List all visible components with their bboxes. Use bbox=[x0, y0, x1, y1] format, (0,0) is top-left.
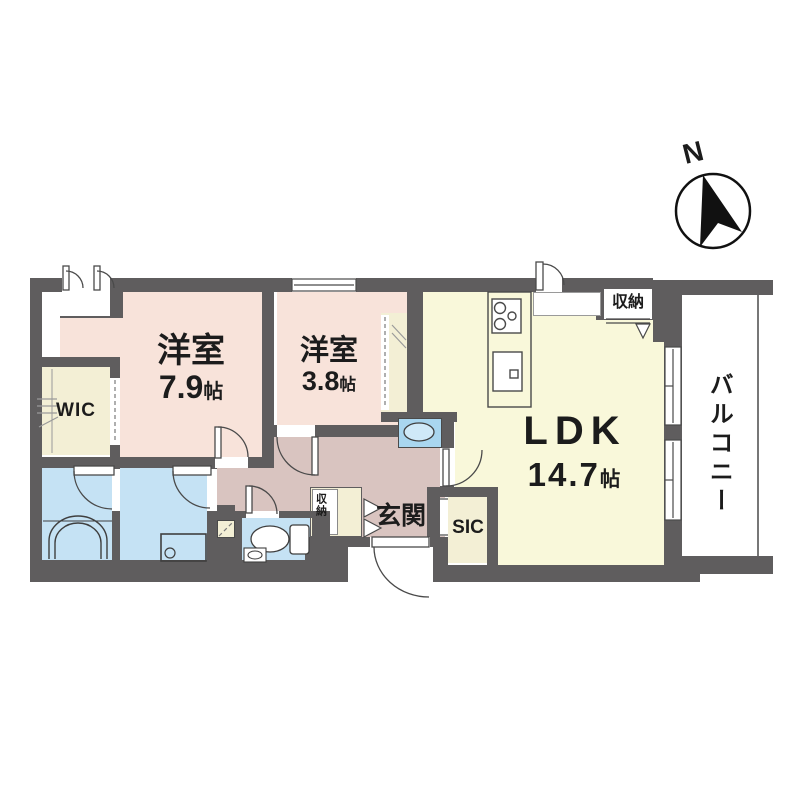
ldk-unit: 帖 bbox=[600, 468, 622, 491]
hall-storage-label: 収納 bbox=[314, 493, 326, 517]
opening-entrance-door bbox=[370, 537, 430, 547]
wall-wic-top bbox=[30, 357, 110, 367]
balcony-label: バルコニー bbox=[706, 372, 731, 517]
wall-kitchen-divider bbox=[407, 288, 423, 412]
bedroom-main-name: 洋室 bbox=[157, 332, 225, 370]
opening-toilet-door bbox=[246, 511, 279, 518]
bedroom-main-size: 7.9 bbox=[159, 369, 203, 405]
wall-porch-edge bbox=[60, 316, 123, 318]
wall-storage-bottom bbox=[305, 537, 348, 560]
opening-ldk-door bbox=[440, 448, 454, 486]
bedroom-second-unit: 帖 bbox=[339, 375, 356, 394]
opening-washroom-door bbox=[207, 469, 217, 511]
opening-bedroom-second-door bbox=[277, 425, 315, 437]
washroom-floor bbox=[120, 467, 207, 560]
entrance-label: 玄関 bbox=[362, 503, 440, 529]
opening-wic-door bbox=[110, 378, 120, 445]
bedroom-second-size: 3.8 bbox=[302, 366, 340, 396]
wall-toilet-left bbox=[235, 518, 242, 563]
north-compass-icon bbox=[676, 174, 750, 248]
bedroom-main-label: 洋室 7.9帖 bbox=[120, 334, 262, 405]
floor-plan: 洋室 7.9帖 洋室 3.8帖 LDK 14.7帖 WIC SIC 玄関 バルコ… bbox=[0, 0, 800, 800]
opening-bedroom-main-door bbox=[215, 457, 248, 468]
sic-label: SIC bbox=[446, 518, 490, 538]
wall-porch-right bbox=[110, 292, 123, 318]
compass-north-label: N bbox=[680, 136, 707, 169]
wall-left bbox=[30, 278, 42, 582]
window-bedroom-second bbox=[292, 278, 356, 292]
ldk-floor-bottom bbox=[498, 497, 664, 567]
opening-kitchen-door bbox=[536, 278, 562, 292]
opening-closet-door bbox=[381, 315, 389, 410]
opening-porch-doors bbox=[62, 278, 110, 292]
bedroom-second-label: 洋室 3.8帖 bbox=[277, 336, 381, 397]
wall-bottom-right bbox=[433, 565, 700, 582]
pipe-space-box bbox=[217, 520, 235, 538]
bedroom-main-unit: 帖 bbox=[203, 381, 223, 403]
ldk-label: LDK 14.7帖 bbox=[475, 410, 675, 494]
bedroom-second-name: 洋室 bbox=[300, 335, 358, 367]
ldk-size: 14.7 bbox=[528, 456, 600, 493]
ldk-name: LDK bbox=[523, 409, 626, 453]
wall-hall-ldk-upper bbox=[440, 412, 454, 450]
toilet-floor bbox=[242, 518, 312, 563]
opening-bathroom-door bbox=[112, 469, 120, 511]
washbasin-counter bbox=[398, 418, 442, 448]
bathroom-floor bbox=[42, 467, 112, 560]
kitchen-counter-strip bbox=[533, 292, 601, 316]
hallway-floor-3 bbox=[310, 467, 362, 487]
wall-bedrooms-divider bbox=[262, 288, 274, 468]
wall-balcony-top bbox=[653, 280, 773, 295]
entrance-door-arc bbox=[374, 547, 429, 597]
wic-label: WIC bbox=[42, 401, 110, 421]
bedroom-main-floor-ext bbox=[60, 318, 120, 357]
wall-bottom-left bbox=[30, 560, 330, 582]
kitchen-storage-label: 収納 bbox=[603, 295, 653, 312]
